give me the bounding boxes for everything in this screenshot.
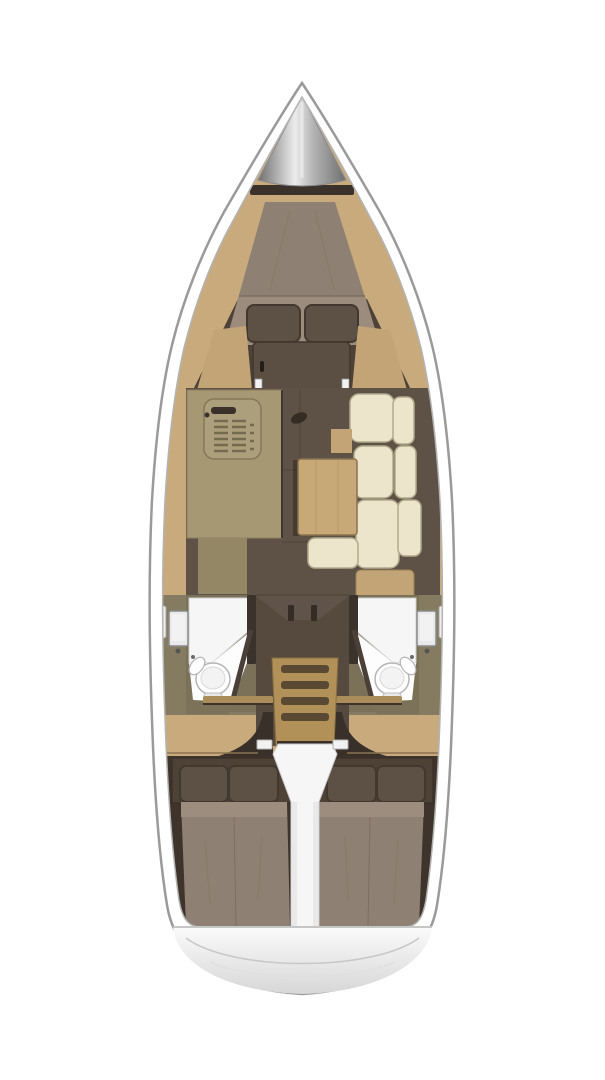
aft-cabins bbox=[163, 740, 443, 932]
v-berth-pillow-right bbox=[305, 305, 358, 342]
sofa-back-low bbox=[398, 500, 421, 556]
transom bbox=[173, 926, 432, 994]
white-tab-right bbox=[333, 740, 348, 749]
grab-rail-port bbox=[203, 696, 273, 704]
sofa-fwd-wood-block bbox=[331, 429, 352, 453]
sofa-bench-cushion bbox=[308, 538, 358, 568]
pillow bbox=[229, 766, 278, 802]
salon-table bbox=[293, 459, 357, 536]
sofa-back-top bbox=[393, 397, 414, 444]
sink-faucet-dot bbox=[191, 655, 195, 659]
table-top bbox=[298, 459, 357, 535]
forward-cabin-door bbox=[253, 342, 350, 390]
white-tab-left bbox=[257, 740, 272, 749]
pillow bbox=[180, 766, 228, 802]
step-2 bbox=[281, 681, 329, 689]
boat-plan-canvas bbox=[0, 0, 605, 1080]
grab-rail-bar bbox=[203, 696, 273, 704]
mattress-head-band bbox=[181, 802, 287, 817]
hinge-right bbox=[311, 605, 317, 621]
galley-counter-lower bbox=[198, 538, 247, 594]
pillow bbox=[327, 766, 376, 802]
head-door-jamb bbox=[247, 595, 256, 664]
hinge-left bbox=[288, 605, 294, 621]
interior bbox=[155, 96, 450, 932]
step-1 bbox=[281, 665, 329, 673]
sofa-seat-mid bbox=[354, 446, 393, 498]
v-berth-pillow-left bbox=[247, 305, 300, 342]
sofa-seat-top bbox=[350, 394, 394, 442]
step-3 bbox=[281, 697, 329, 705]
engine-box-shade-left bbox=[291, 802, 297, 928]
sofa-back-mid bbox=[395, 446, 416, 498]
vanity-faucet-dot bbox=[176, 649, 181, 654]
toilet-seat bbox=[201, 667, 225, 689]
head-mirror-glare bbox=[172, 614, 185, 641]
starboard-aft-berth bbox=[315, 766, 425, 926]
grab-rail-starboard bbox=[332, 696, 402, 704]
pillow bbox=[377, 766, 425, 802]
boat-plan bbox=[0, 0, 605, 1080]
sofa-seat-low bbox=[356, 500, 399, 568]
mattress-head-band bbox=[318, 802, 424, 817]
door-handle bbox=[260, 361, 264, 372]
port-aft-berth bbox=[180, 766, 290, 926]
faucet-knob bbox=[205, 413, 210, 418]
faucet-bar bbox=[211, 407, 236, 414]
step-4 bbox=[281, 713, 329, 721]
engine-box-shade-right bbox=[313, 802, 319, 928]
transom-deck bbox=[173, 926, 432, 994]
